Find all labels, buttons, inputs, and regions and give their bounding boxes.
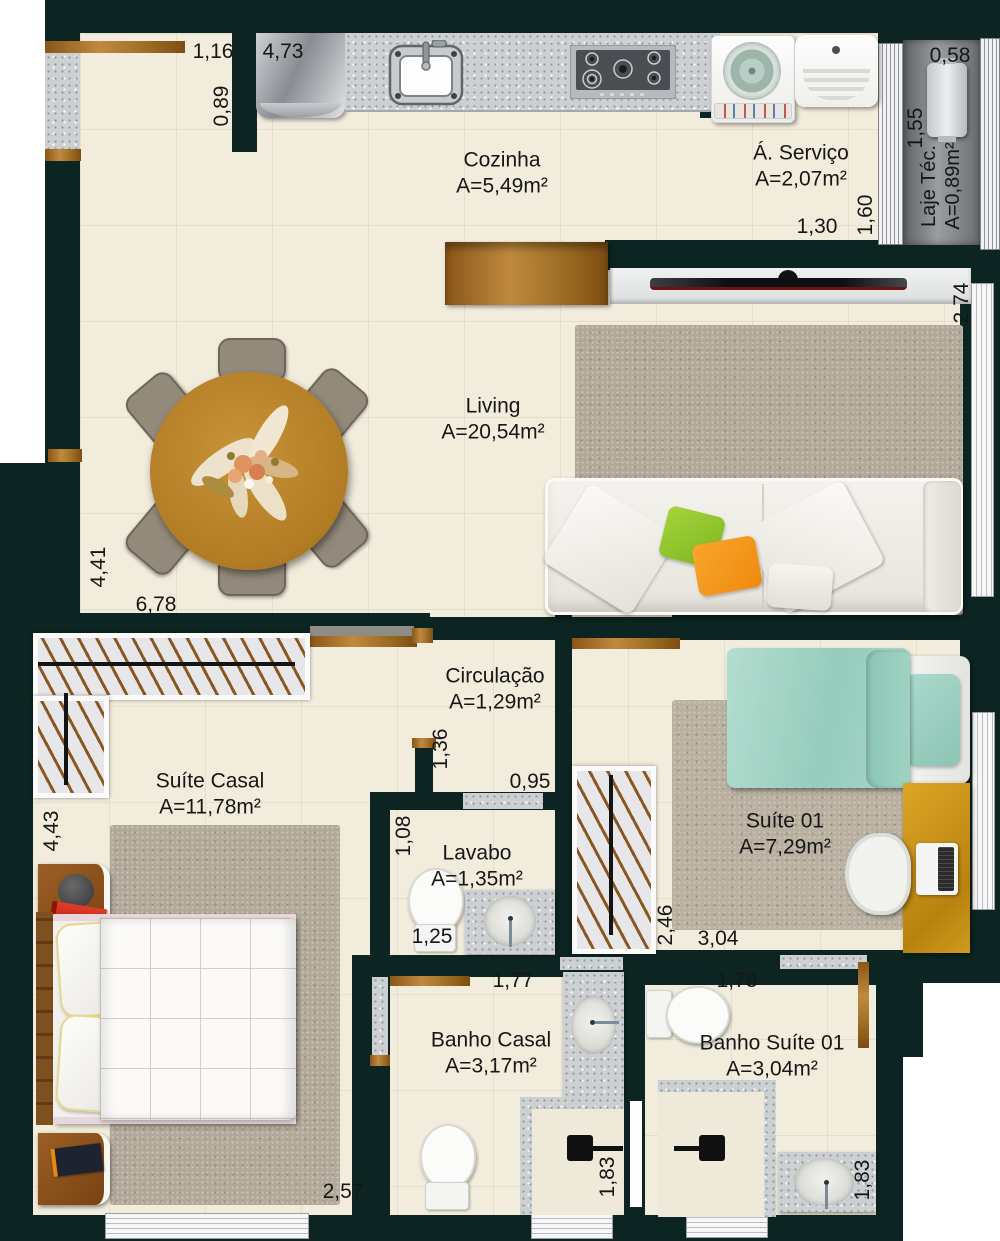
- sideboard: [445, 242, 608, 305]
- shower-arm: [592, 1146, 623, 1151]
- ac-condenser: [927, 63, 967, 137]
- outside-bottom-right: [903, 1057, 1000, 1241]
- ac-condenser-tab-bottom: [938, 136, 956, 142]
- banho-casal-faucet-line: [595, 1021, 619, 1024]
- wardrobe-suite-casal-side: [33, 696, 109, 798]
- dim-laje-height: 1,55: [904, 108, 928, 149]
- dim-living-window: 2,74: [950, 283, 974, 324]
- outside-top-left: [0, 0, 45, 463]
- banho-suite-door-leaf: [858, 962, 869, 1048]
- dim-banho-casal-width: 1,77: [493, 969, 534, 993]
- shower-arm: [674, 1146, 701, 1151]
- wall-left-lower: [0, 617, 33, 1241]
- tv: [650, 278, 907, 290]
- wall-lavabo-left: [370, 792, 390, 957]
- dim-laje-width: 0,58: [930, 44, 971, 68]
- room-label-cozinha: CozinhaA=5,49m²: [456, 147, 548, 198]
- banho-casal-basin: [571, 996, 616, 1054]
- kitchen-sink: [388, 40, 464, 106]
- banho-casal-jamb: [372, 977, 388, 1057]
- bed-suite01-pillow: [906, 674, 960, 766]
- wall-banho-suite-right: [876, 983, 905, 1241]
- living-window: [971, 283, 994, 597]
- kitchen-window-trim-bottom: [45, 149, 81, 161]
- dim-banho-casal-height: 1,83: [596, 1157, 620, 1198]
- cooktop: [570, 45, 676, 99]
- room-label-circulacao: CirculaçãoA=1,29m²: [445, 663, 544, 714]
- laptop-keyboard: [938, 847, 954, 891]
- table-centerpiece: [173, 392, 323, 542]
- banho-suite-threshold: [780, 955, 867, 969]
- dim-living-height: 4,41: [87, 547, 111, 588]
- sofa-pillow-orange: [691, 535, 763, 597]
- dim-kitchen-left-width: 1,16: [193, 40, 234, 64]
- suite-casal-door-leaf: [310, 636, 417, 647]
- room-label-suite-casal: Suíte CasalA=11,78m²: [156, 768, 265, 819]
- wall-living-band-right: [672, 615, 990, 640]
- wall-banho-suite-corner: [867, 950, 927, 983]
- dining-wall-trim: [48, 449, 82, 462]
- dim-servico-height: 1,60: [854, 195, 878, 236]
- wardrobe-suite-casal-top: [33, 633, 310, 700]
- dim-banho-suite-width: 1,78: [717, 969, 758, 993]
- bed-casal-duvet: [100, 918, 296, 1120]
- bathroom-light-slot: [630, 1101, 642, 1207]
- banho-casal-window: [531, 1214, 613, 1239]
- bed-casal-headboard: [36, 912, 53, 1125]
- room-label-lavabo: LavaboA=1,35m²: [431, 840, 523, 891]
- suite01-door-leaf: [572, 638, 680, 649]
- lavabo-threshold: [463, 793, 543, 809]
- banho-casal-hinge: [370, 1055, 390, 1066]
- sofa-armrest: [923, 481, 961, 612]
- room-label-servico: Á. ServiçoA=2,07m²: [753, 140, 849, 191]
- dim-lavabo-depth: 1,08: [392, 816, 416, 857]
- wall-kitchen-column: [232, 32, 257, 152]
- room-label-suite01: Suíte 01A=7,29m²: [739, 808, 831, 859]
- room-label-living: LivingA=20,54m²: [441, 393, 544, 444]
- dim-suite-casal-width: 2,57: [323, 1180, 364, 1204]
- shower-head: [699, 1135, 725, 1161]
- dim-suite-casal-height: 4,43: [40, 811, 64, 852]
- wall-left-dining: [0, 463, 80, 617]
- laundry-tank-drain: [832, 46, 840, 54]
- outside-right-notch: [923, 983, 1000, 1057]
- dim-circulacao-depth: 1,36: [429, 729, 453, 770]
- dim-banho-suite-height: 1,83: [851, 1160, 875, 1201]
- wall-circ-suite01: [555, 610, 572, 957]
- banho-casal-door-leaf: [390, 976, 470, 986]
- wall-end-cap: [412, 628, 433, 643]
- dim-kitchen-width: 4,73: [263, 40, 304, 64]
- washing-machine-drum: [723, 42, 781, 100]
- kitchen-window-trim-top: [45, 41, 185, 53]
- floor-plan: CozinhaA=5,49m² Á. ServiçoA=2,07m² Laje …: [0, 0, 1000, 1241]
- dim-suite01-width: 3,04: [698, 927, 739, 951]
- lavabo-faucet-line: [509, 921, 512, 947]
- wall-top: [45, 0, 990, 33]
- banho-suite-faucet-line: [825, 1185, 828, 1209]
- room-label-banho-casal: Banho CasalA=3,17m²: [431, 1027, 551, 1078]
- desk-chair: [845, 833, 911, 915]
- dim-living-width: 6,78: [136, 593, 177, 617]
- suite-casal-window: [105, 1213, 309, 1239]
- washing-machine-panel: [714, 103, 792, 119]
- toilet-tank: [425, 1182, 469, 1210]
- dim-servico-width: 1,30: [797, 215, 838, 239]
- wardrobe-suite01: [572, 766, 656, 954]
- bed-suite01-fold: [866, 650, 910, 788]
- suite01-window: [972, 712, 995, 910]
- dim-closet-height: 2,46: [654, 905, 678, 946]
- toilet: [420, 1124, 476, 1190]
- shower-head: [567, 1135, 593, 1161]
- sofa-pillow-small: [767, 563, 834, 611]
- laje-louver-window: [980, 38, 1000, 250]
- dim-lavabo-width: 0,95: [510, 770, 551, 794]
- kitchen-window-sill: [45, 47, 80, 152]
- servico-louver-window: [878, 43, 905, 245]
- dim-lavabo-width2: 1,25: [412, 925, 453, 949]
- room-label-laje: Laje Téc.A=0,89m²: [917, 142, 965, 229]
- banho-casal-threshold: [560, 957, 623, 970]
- room-label-banho-suite: Banho Suíte 01A=3,04m²: [700, 1030, 845, 1081]
- dim-kitchen-left-depth: 0,89: [210, 86, 234, 127]
